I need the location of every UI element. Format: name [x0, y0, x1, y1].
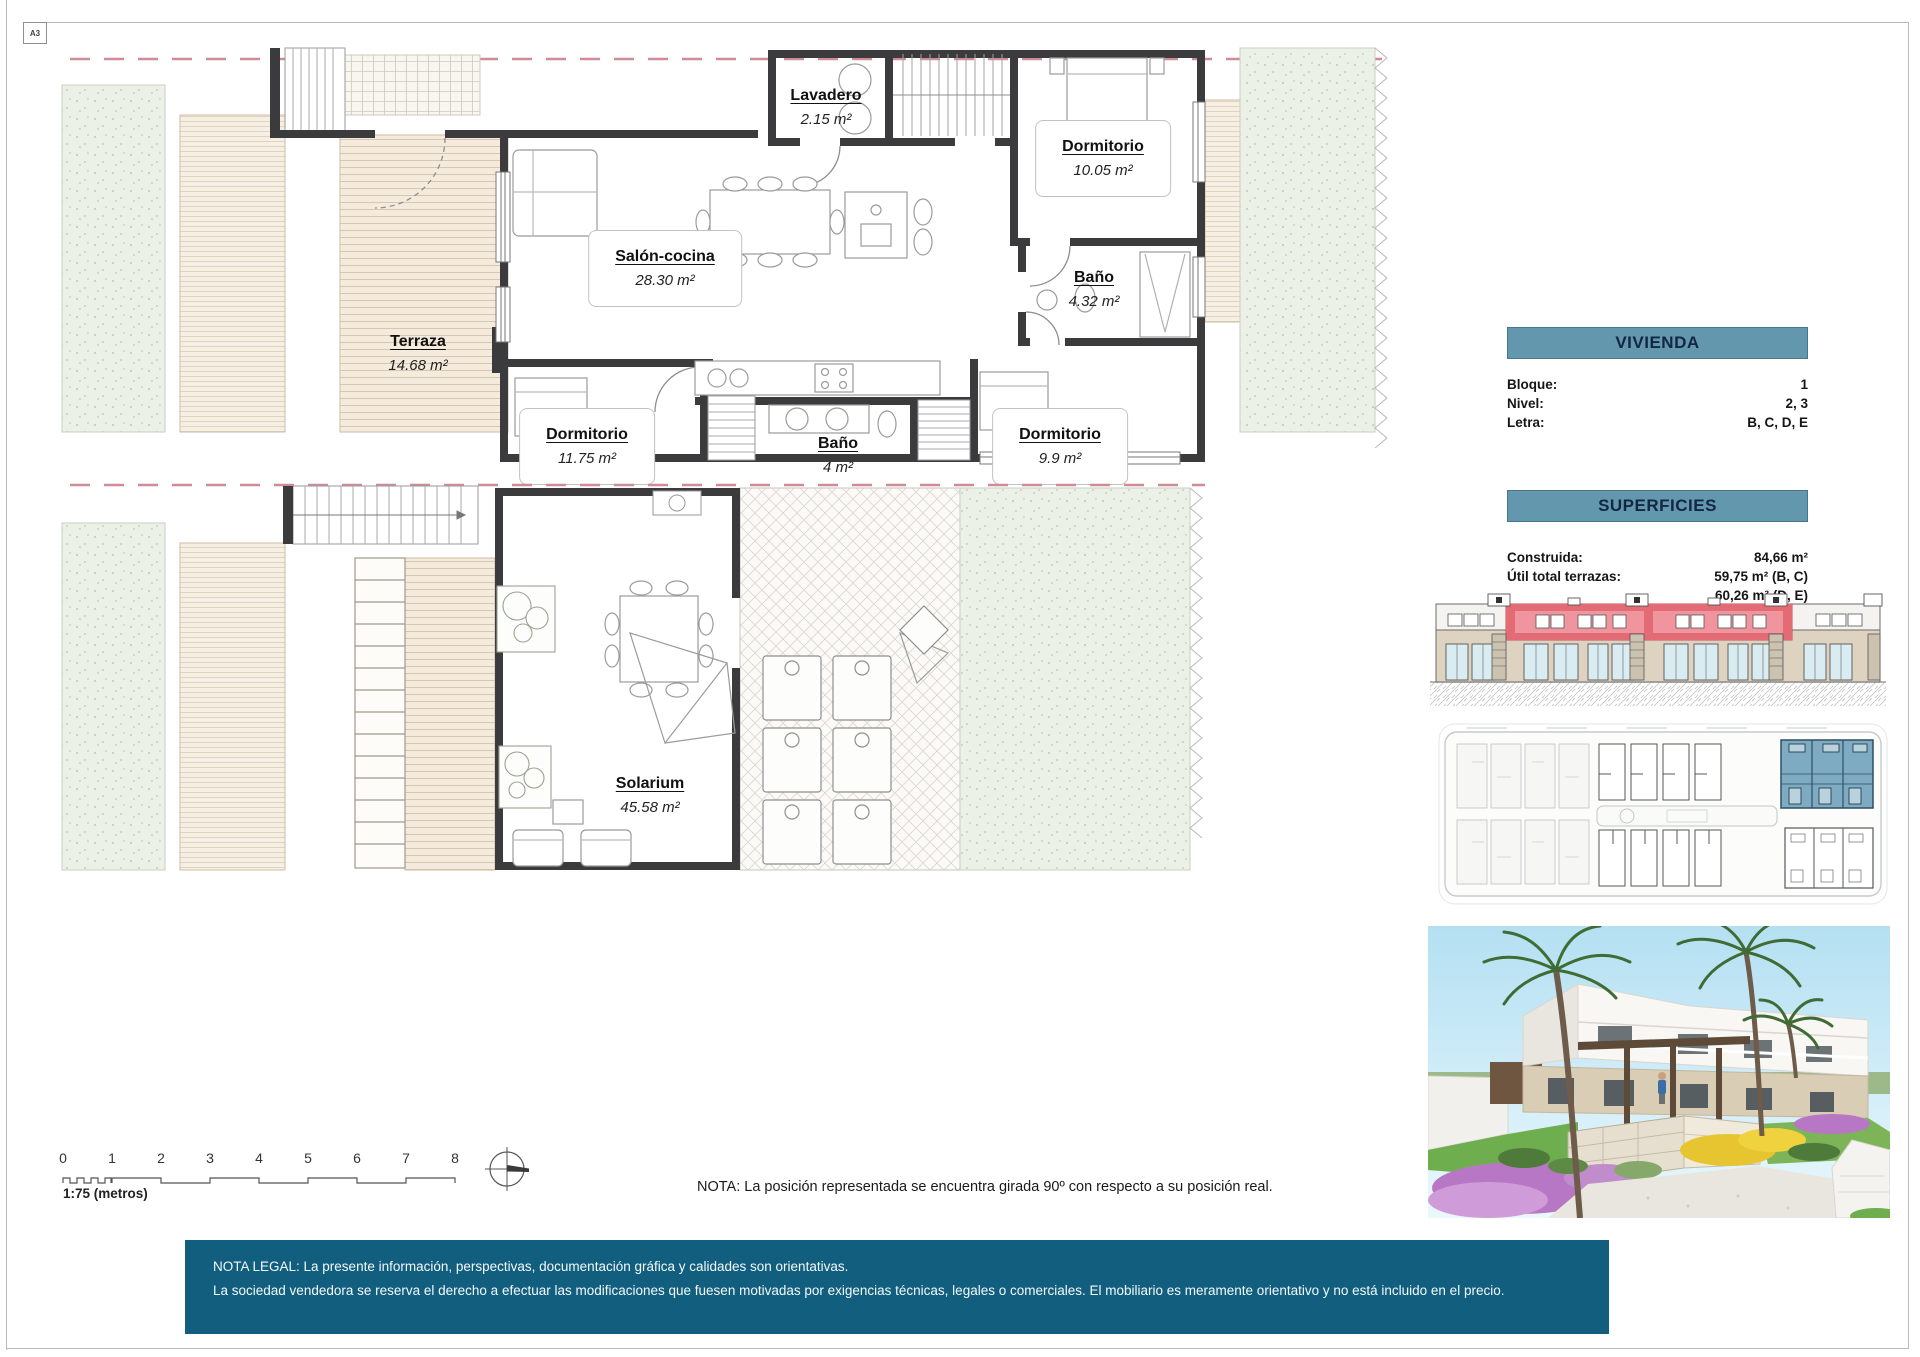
- plan-sheet: A3: [0, 0, 1920, 1357]
- frame-left: [6, 0, 7, 1350]
- render-figure: [1428, 926, 1890, 1218]
- site-plan-figure: [1437, 722, 1889, 908]
- scale-tick: 6: [353, 1150, 361, 1166]
- elevation-figure: [1428, 590, 1890, 714]
- solarium-plan: Solarium 45.58 m²: [55, 478, 1395, 898]
- room-label-lavadero: Lavadero 2.15 m²: [790, 84, 861, 131]
- vivienda-banner: VIVIENDA: [1507, 327, 1808, 359]
- scale-tick: 1: [108, 1150, 116, 1166]
- frame-bottom: [6, 1348, 1909, 1349]
- legal-line-1: NOTA LEGAL: La presente información, per…: [213, 1255, 1609, 1279]
- solarium-plan-drawing: [55, 478, 1395, 898]
- room-label-dormitorio-2: Dormitorio 11.75 m²: [519, 408, 655, 485]
- frame-right: [1908, 22, 1909, 1348]
- sheet-size-label: A3: [23, 22, 47, 44]
- info-panel: VIVIENDA Bloque: 1 Nivel: 2, 3 Letra: B,…: [1507, 327, 1808, 605]
- scale-label: 1:75 (metros): [63, 1186, 148, 1201]
- room-label-terraza: Terraza 14.68 m²: [388, 330, 447, 377]
- info-row-nivel: Nivel: 2, 3: [1507, 394, 1808, 413]
- superficies-banner: SUPERFICIES: [1507, 490, 1808, 522]
- north-arrow-icon: [484, 1146, 530, 1192]
- legal-footer: NOTA LEGAL: La presente información, per…: [185, 1240, 1609, 1334]
- scale-tick: 5: [304, 1150, 312, 1166]
- scale-tick: 2: [157, 1150, 165, 1166]
- scale-tick: 8: [451, 1150, 459, 1166]
- room-label-dormitorio-3: Dormitorio 9.9 m²: [992, 408, 1128, 485]
- room-label-salon-cocina: Salón-cocina 28.30 m²: [588, 230, 742, 307]
- scale-tick: 7: [402, 1150, 410, 1166]
- room-label-dormitorio-1: Dormitorio 10.05 m²: [1035, 120, 1171, 197]
- info-row-construida: Construida: 84,66 m²: [1507, 548, 1808, 567]
- frame-top: [23, 22, 1908, 23]
- upper-floor-plan: Lavadero 2.15 m² Dormitorio 10.05 m² Sal…: [55, 42, 1395, 470]
- scale-tick: 0: [59, 1150, 67, 1166]
- info-row-bloque: Bloque: 1: [1507, 375, 1808, 394]
- room-label-bano-1: Baño 4.32 m²: [1069, 266, 1120, 313]
- scale-tick: 3: [206, 1150, 214, 1166]
- scale-bar-line: [55, 1168, 475, 1186]
- rotation-note: NOTA: La posición representada se encuen…: [697, 1179, 1273, 1195]
- info-row-letra: Letra: B, C, D, E: [1507, 413, 1808, 432]
- scale-bar: 0 1 2 3 4 5 6 7 8 1:75 (metros): [55, 1150, 475, 1210]
- scale-tick: 4: [255, 1150, 263, 1166]
- room-label-solarium: Solarium 45.58 m²: [616, 772, 684, 819]
- room-label-bano-2: Baño 4 m²: [818, 432, 858, 479]
- vivienda-rows: Bloque: 1 Nivel: 2, 3 Letra: B, C, D, E: [1507, 375, 1808, 432]
- legal-line-2: La sociedad vendedora se reserva el dere…: [213, 1279, 1609, 1303]
